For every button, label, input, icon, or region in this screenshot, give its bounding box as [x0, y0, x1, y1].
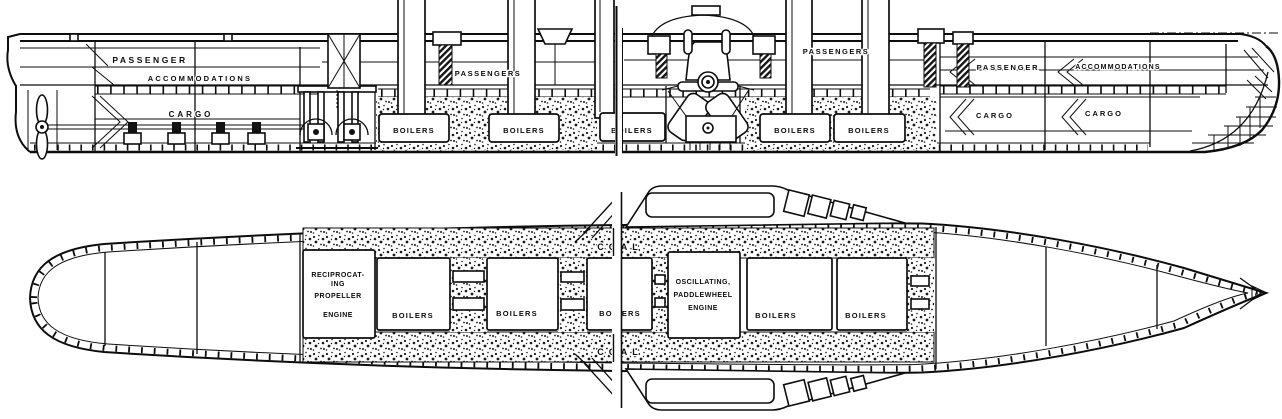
label-oscillating-line3: ENGINE — [688, 305, 718, 312]
label-oscillating-line2: PADDLEWHEEL — [673, 292, 732, 299]
label-passengers-mid-fwd: PASSENGERS — [803, 47, 870, 56]
label-boilers-elevation-4: BOILERS — [774, 126, 816, 135]
funnel — [398, 0, 425, 120]
label-boilers-elevation-5: BOILERS — [848, 126, 890, 135]
label-accommodations-aft: ACCOMMODATIONS — [148, 74, 252, 83]
label-reciprocating-line3: PROPELLER — [314, 293, 361, 300]
label-oscillating-line1: OSCILLATING, — [676, 279, 731, 286]
label-boilers-plan-2: BOILERS — [496, 309, 538, 318]
label-boilers-plan-1: BOILERS — [392, 311, 434, 320]
funnel — [508, 0, 535, 120]
deck-plan-view: RECIPROCAT- ING PROPELLER ENGINE BOILERS… — [30, 186, 1267, 414]
sheet-break-elevation — [615, 2, 623, 160]
elevation-deck-tick-rows — [95, 86, 1226, 97]
propeller-shaft — [48, 122, 305, 144]
sheet-break-plan — [612, 186, 622, 414]
label-boilers-plan-4: BOILERS — [755, 311, 797, 320]
side-elevation-view: PASSENGER ACCOMMODATIONS CARGO PASSENGER… — [7, 0, 1281, 160]
label-passenger-fwd: PASSENGER — [977, 63, 1040, 72]
label-accommodations-fwd: ACCOMMODATIONS — [1075, 64, 1161, 71]
label-boilers-elevation-1: BOILERS — [393, 126, 435, 135]
engine-room-skylight-frame — [328, 34, 360, 88]
ship-profile-and-plan-diagram: PASSENGER ACCOMMODATIONS CARGO PASSENGER… — [0, 0, 1282, 419]
plan-compartments — [303, 250, 907, 338]
label-boilers-plan-5: BOILERS — [845, 311, 887, 320]
label-reciprocating-line1: RECIPROCAT- — [311, 272, 364, 279]
propeller-icon — [36, 95, 48, 159]
label-passenger-aft: PASSENGER — [112, 55, 187, 65]
boiler-room — [487, 258, 558, 330]
paddle-sponson-top — [626, 186, 905, 227]
funnel — [595, 0, 614, 118]
paddle-sponson-bottom — [626, 369, 905, 410]
funnel — [862, 0, 889, 120]
label-boilers-elevation-2: BOILERS — [503, 126, 545, 135]
reciprocating-engine-icon — [296, 86, 378, 148]
funnel — [786, 0, 812, 120]
bow-framing-grid — [1190, 48, 1277, 151]
ship-diagram-page: PASSENGER ACCOMMODATIONS CARGO PASSENGER… — [0, 0, 1282, 419]
label-cargo-aft: CARGO — [169, 110, 214, 119]
label-reciprocating-line2: ING — [331, 281, 345, 288]
label-cargo-fwd-2: CARGO — [1085, 109, 1123, 118]
label-passengers-mid-aft: PASSENGERS — [455, 69, 522, 78]
label-reciprocating-line4: ENGINE — [323, 312, 353, 319]
label-cargo-fwd-1: CARGO — [976, 111, 1014, 120]
